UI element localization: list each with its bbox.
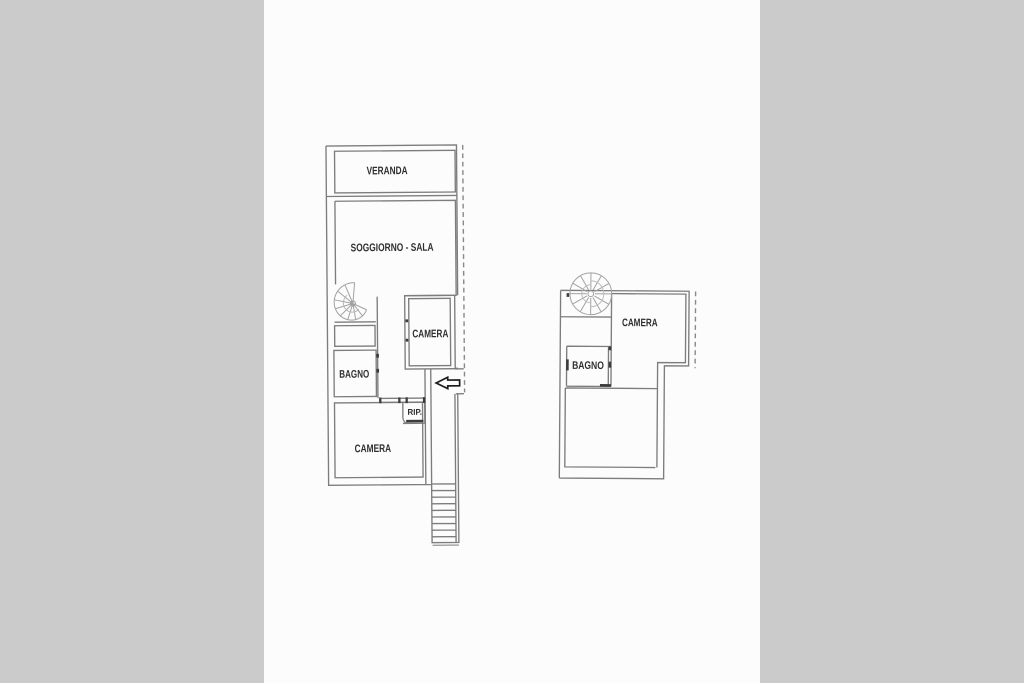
svg-text:BAGNO: BAGNO	[572, 360, 604, 372]
svg-text:CAMERA: CAMERA	[355, 443, 392, 455]
svg-text:SOGGIORNO - SALA: SOGGIORNO - SALA	[351, 242, 434, 255]
svg-text:CAMERA: CAMERA	[622, 317, 658, 329]
svg-text:CAMERA: CAMERA	[412, 328, 448, 340]
svg-text:VERANDA: VERANDA	[367, 165, 408, 177]
svg-text:RIP.: RIP.	[407, 407, 422, 417]
svg-text:BAGNO: BAGNO	[339, 369, 369, 381]
